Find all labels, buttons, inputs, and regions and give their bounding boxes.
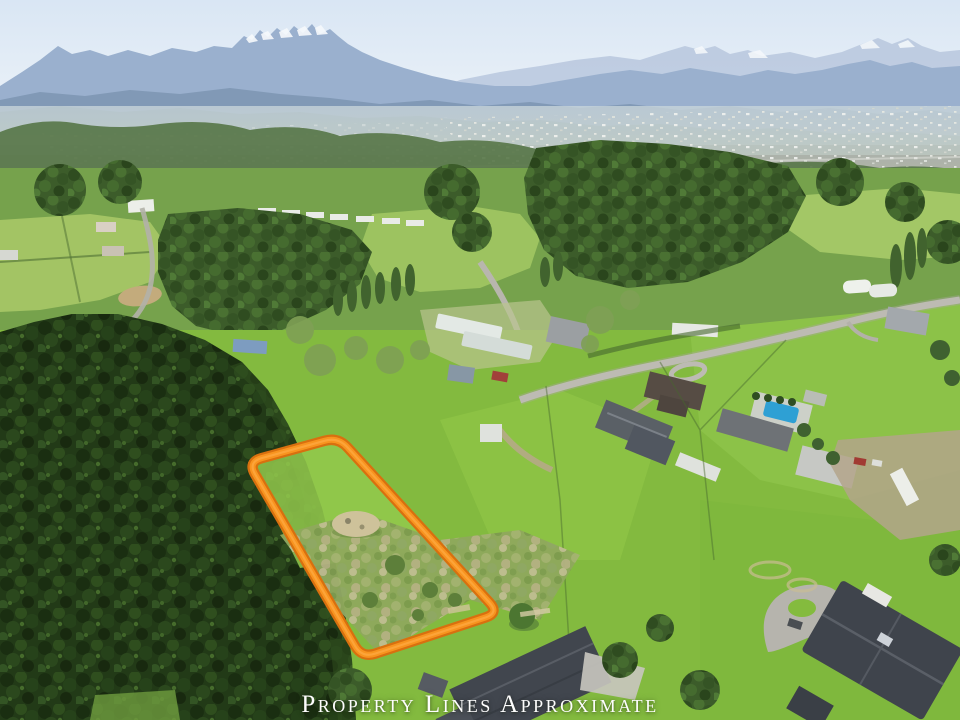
brush-debris <box>360 525 365 530</box>
poplar <box>391 267 401 301</box>
brush-pile <box>332 511 380 537</box>
poplar <box>361 275 371 309</box>
hedge-bush <box>764 394 772 402</box>
shrub <box>422 582 438 598</box>
quonset-hut <box>869 283 898 298</box>
forest-clearing <box>90 690 180 720</box>
poplar <box>540 257 550 287</box>
tree <box>680 670 720 710</box>
tree-clump <box>98 160 142 204</box>
white-shed <box>480 424 502 442</box>
blue-roof-trailer <box>233 339 268 354</box>
hedge-tree <box>826 451 840 465</box>
shrub <box>412 609 424 621</box>
tree-clump <box>885 182 925 222</box>
shrub <box>448 593 462 607</box>
mobile-home <box>330 214 348 220</box>
scrub-tree <box>376 346 404 374</box>
mobile-home <box>406 220 424 226</box>
field-tree <box>930 340 950 360</box>
tree-clump <box>816 158 864 206</box>
hedge-tree <box>812 438 824 450</box>
tree-clump <box>34 164 86 216</box>
tree <box>646 614 674 642</box>
scrub-tree <box>286 316 314 344</box>
aerial-photo-canvas <box>0 0 960 720</box>
poplar <box>347 280 357 312</box>
property-lines-caption: Property Lines Approximate <box>301 691 658 719</box>
house-roof <box>102 246 124 256</box>
tree <box>602 642 638 678</box>
tree <box>929 544 960 576</box>
mobile-home <box>356 216 374 222</box>
poplar <box>890 244 902 288</box>
house-roof <box>0 250 18 260</box>
driveway-island <box>788 599 816 617</box>
house-roof <box>96 222 116 232</box>
quonset-hut <box>843 279 872 294</box>
hedge-bush <box>752 392 760 400</box>
tree-clump <box>424 164 480 220</box>
scrub-tree <box>344 336 368 360</box>
tree-clump <box>452 212 492 252</box>
mobile-home <box>382 218 400 224</box>
foreground <box>0 279 960 720</box>
poplar <box>917 228 927 268</box>
poplar <box>333 284 343 316</box>
shrub <box>362 592 378 608</box>
poplar <box>405 264 415 296</box>
shrub <box>385 555 405 575</box>
field-tree <box>944 370 960 386</box>
hedge-bush <box>788 398 796 406</box>
aerial-photo: Property Lines Approximate <box>0 0 960 720</box>
scrub-tree <box>304 344 336 376</box>
scrub-tree <box>620 290 640 310</box>
brush-debris <box>345 518 351 524</box>
scrub-tree <box>581 335 599 353</box>
scrub-tree <box>586 306 614 334</box>
poplar <box>904 232 916 280</box>
poplar <box>375 272 385 304</box>
hedge-bush <box>776 396 784 404</box>
hedge-tree <box>797 423 811 437</box>
scrub-tree <box>410 340 430 360</box>
poplar <box>553 251 563 281</box>
